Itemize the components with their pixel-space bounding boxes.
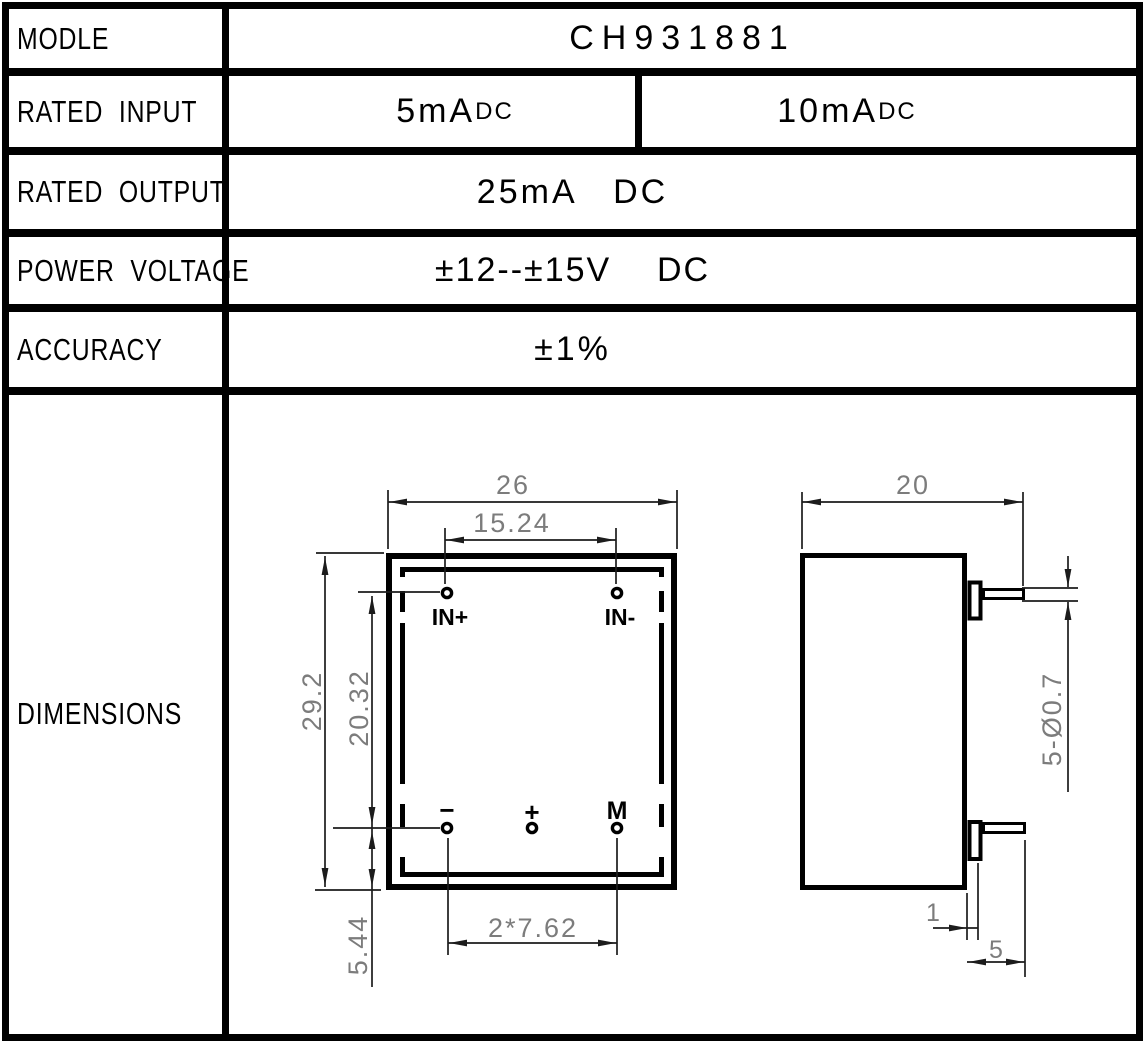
dim-top-pin-spacing: 15.24 [445, 508, 616, 584]
pin-in-minus: IN- [605, 588, 636, 630]
dim-lead-inset-text: 1 [926, 899, 942, 927]
dim-bottom-pin-offset-text: 5.44 [343, 915, 373, 976]
dim-lead-spec-text: 5-Ø0.7 [1037, 672, 1067, 767]
dim-bottom-pin-spacing: 2*7.62 [448, 838, 617, 955]
front-view: IN+ IN- − + M 26 [297, 470, 677, 987]
side-view-outline [803, 556, 965, 888]
top-pin-lead [984, 590, 1024, 599]
top-pin-collar [970, 583, 981, 619]
dim-side-depth: 20 [802, 470, 1023, 586]
bottom-pin-lead [984, 824, 1025, 833]
dim-bottom-pin-spacing-text: 2*7.62 [488, 913, 578, 943]
pin-in-plus-label: IN+ [432, 604, 468, 630]
dim-top-pin-spacing-text: 15.24 [473, 508, 551, 538]
dim-pin-row-spacing-text: 20.32 [344, 669, 374, 747]
dim-side-depth-text: 20 [896, 470, 930, 500]
datasheet-page: MODLE RATED INPUT RATED OUTPUT POWER VOL… [0, 0, 1145, 1043]
pin-minus-label: − [439, 795, 454, 825]
pin-in-minus-label: IN- [605, 604, 636, 630]
dim-front-width-text: 26 [496, 470, 530, 500]
bottom-pin-collar [970, 822, 981, 859]
pin-in-minus-pad [612, 588, 621, 597]
dim-lead-inset: 1 [926, 863, 978, 940]
pin-m: M [607, 797, 628, 833]
side-view: 20 5-Ø0.7 1 5 [802, 470, 1078, 977]
dim-lead-length-text: 5 [989, 936, 1005, 964]
dim-bottom-pin-offset: 5.44 [343, 831, 375, 975]
pin-plus-label: + [524, 797, 539, 827]
dim-front-height-text: 29.2 [297, 671, 327, 732]
dim-lead-spec: 5-Ø0.7 [1022, 556, 1078, 792]
pin-m-label: M [607, 797, 628, 825]
dimensions-drawing: IN+ IN- − + M 26 [0, 0, 1145, 1043]
pin-in-plus: IN+ [432, 588, 468, 630]
pin-minus: − [439, 795, 454, 833]
pin-in-plus-pad [442, 588, 451, 597]
pin-plus: + [524, 797, 539, 833]
